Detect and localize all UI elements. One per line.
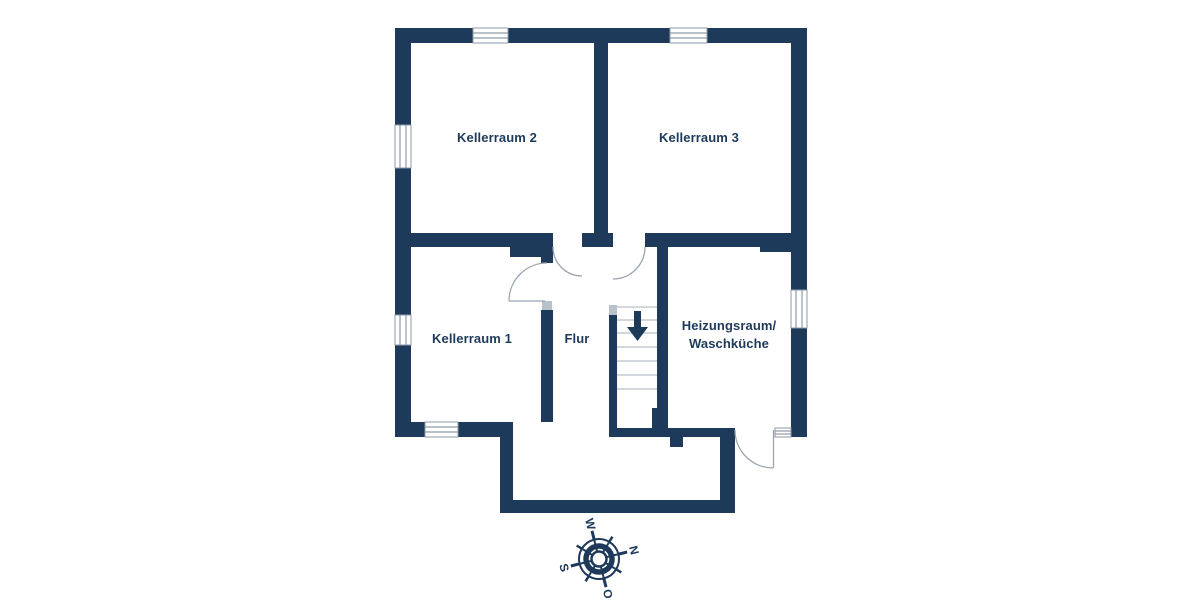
wall: [645, 233, 760, 247]
wall-stub: [670, 437, 683, 447]
compass-rose: N O S W: [547, 508, 650, 600]
window: [775, 428, 791, 437]
wall: [508, 28, 670, 43]
door-arc-exterior: [735, 430, 773, 468]
wall: [395, 28, 411, 125]
door-arc-kellerraum2: [553, 247, 582, 276]
door-arc-kellerraum3: [613, 247, 645, 279]
window: [473, 28, 508, 43]
compass-hub: [590, 550, 608, 568]
wall: [541, 247, 553, 263]
floor-plan-page: Kellerraum 2 Kellerraum 3 Kellerraum 1 F…: [0, 0, 1200, 600]
stairs: [617, 307, 657, 389]
door-jamb: [609, 305, 617, 315]
wall: [395, 422, 425, 437]
wall-stair-foot: [652, 408, 668, 428]
compass-label-west: W: [582, 517, 598, 532]
door-jamb: [542, 301, 552, 310]
compass-label-east: O: [600, 588, 616, 600]
wall: [791, 328, 807, 437]
room-label-kellerraum-2: Kellerraum 2: [457, 130, 537, 145]
wall-divider-k2-k3: [594, 43, 608, 233]
wall: [582, 233, 613, 247]
window: [395, 315, 411, 345]
window: [791, 290, 807, 328]
compass-label-south: S: [556, 562, 572, 573]
wall: [500, 500, 735, 513]
window: [395, 125, 411, 168]
stair-direction-arrow: [627, 311, 648, 341]
wall: [458, 422, 513, 437]
compass-label-north: N: [626, 544, 642, 556]
window: [425, 422, 458, 437]
room-label-heizungsraum-line1: Heizungsraum/: [682, 318, 777, 333]
window: [670, 28, 707, 43]
wall: [720, 437, 735, 500]
room-label-heizungsraum-line2: Waschküche: [689, 336, 769, 351]
wall: [609, 428, 735, 437]
room-label-kellerraum-3: Kellerraum 3: [659, 130, 739, 145]
wall-pier: [760, 233, 797, 252]
wall: [395, 233, 553, 247]
door-arc-kellerraum1: [509, 263, 547, 301]
wall: [541, 310, 553, 422]
room-label-flur: Flur: [565, 331, 590, 346]
wall-stair: [609, 315, 617, 428]
room-label-kellerraum-1: Kellerraum 1: [432, 331, 512, 346]
floor-plan: Kellerraum 2 Kellerraum 3 Kellerraum 1 F…: [0, 0, 1200, 600]
walls: [395, 28, 807, 513]
